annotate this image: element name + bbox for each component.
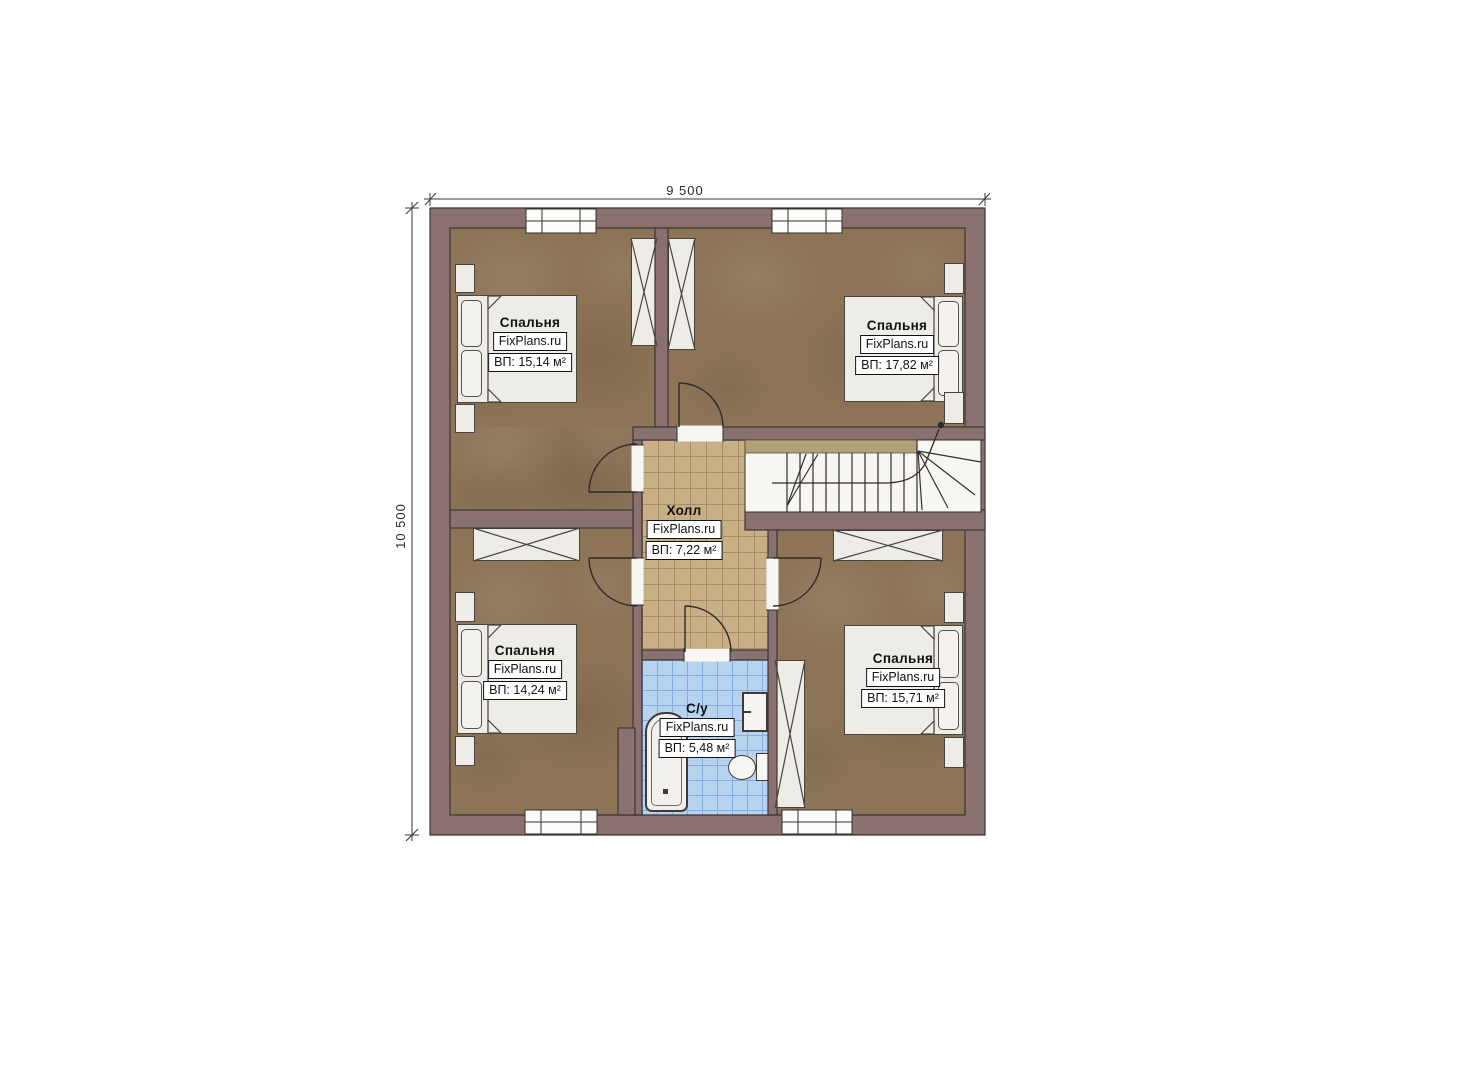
room-label-bedroom-top-left: Спальня FixPlans.ru ВП: 15,14 м² (488, 315, 572, 372)
nightstand (455, 264, 475, 293)
stair-treads (787, 440, 981, 512)
wardrobe (775, 660, 805, 808)
room-area: ВП: 14,24 м² (483, 681, 567, 700)
wardrobe (668, 238, 695, 350)
room-label-hall: Холл FixPlans.ru ВП: 7,22 м² (646, 503, 723, 560)
room-name: Спальня (500, 315, 560, 330)
nightstand (944, 737, 964, 768)
room-name: Спальня (495, 643, 555, 658)
room-label-bedroom-bottom-left: Спальня FixPlans.ru ВП: 14,24 м² (483, 643, 567, 700)
wardrobe (833, 530, 943, 561)
pillow (938, 350, 959, 396)
stair-travel-path (772, 422, 944, 483)
toilet-tank (756, 753, 769, 781)
nightstand (455, 736, 475, 766)
wardrobe (473, 528, 580, 561)
branding-badge: FixPlans.ru (660, 718, 735, 737)
room-name: Спальня (867, 318, 927, 333)
pillow (461, 350, 482, 397)
stair-landing (745, 440, 917, 453)
branding-badge: FixPlans.ru (860, 335, 935, 354)
room-area: ВП: 17,82 м² (855, 356, 939, 375)
branding-badge: FixPlans.ru (647, 520, 722, 539)
dimension-label-height: 10 500 (393, 471, 413, 581)
nightstand (455, 592, 475, 622)
nightstand (944, 592, 964, 623)
room-area: ВП: 15,71 м² (861, 689, 945, 708)
room-area: ВП: 15,14 м² (488, 353, 572, 372)
room-label-bedroom-top-right: Спальня FixPlans.ru ВП: 17,82 м² (855, 318, 939, 375)
room-label-bedroom-bottom-right: Спальня FixPlans.ru ВП: 15,71 м² (861, 651, 945, 708)
switch-icon (626, 753, 636, 763)
floor-plan-page: 9 500 10 500 Спальня FixPlans.ru ВП: 15,… (0, 0, 1473, 1080)
branding-badge: FixPlans.ru (488, 660, 563, 679)
bathtub-drain (663, 789, 668, 794)
nightstand (944, 263, 964, 294)
pillow (461, 300, 482, 347)
staircase (745, 422, 981, 512)
room-area: ВП: 5,48 м² (659, 739, 736, 758)
sink (742, 692, 768, 732)
switch-icon (626, 741, 636, 751)
stair-break-line (787, 454, 818, 506)
pillow (461, 681, 482, 729)
room-label-bathroom: С/у FixPlans.ru ВП: 5,48 м² (659, 701, 736, 758)
branding-badge: FixPlans.ru (493, 332, 568, 351)
floor-bedroom-top-left-lower (450, 427, 633, 510)
toilet-bowl (728, 755, 756, 780)
room-name: Холл (666, 503, 701, 518)
pillow (938, 301, 959, 347)
sink-tap (743, 711, 751, 713)
room-name: С/у (686, 701, 708, 716)
room-area: ВП: 7,22 м² (646, 541, 723, 560)
wardrobe (631, 238, 657, 346)
nightstand (455, 404, 475, 433)
nightstand (944, 392, 964, 424)
room-name: Спальня (873, 651, 933, 666)
branding-badge: FixPlans.ru (866, 668, 941, 687)
pillow (461, 629, 482, 677)
dimension-label-width: 9 500 (630, 183, 740, 198)
stair-winder-treads (918, 451, 981, 510)
